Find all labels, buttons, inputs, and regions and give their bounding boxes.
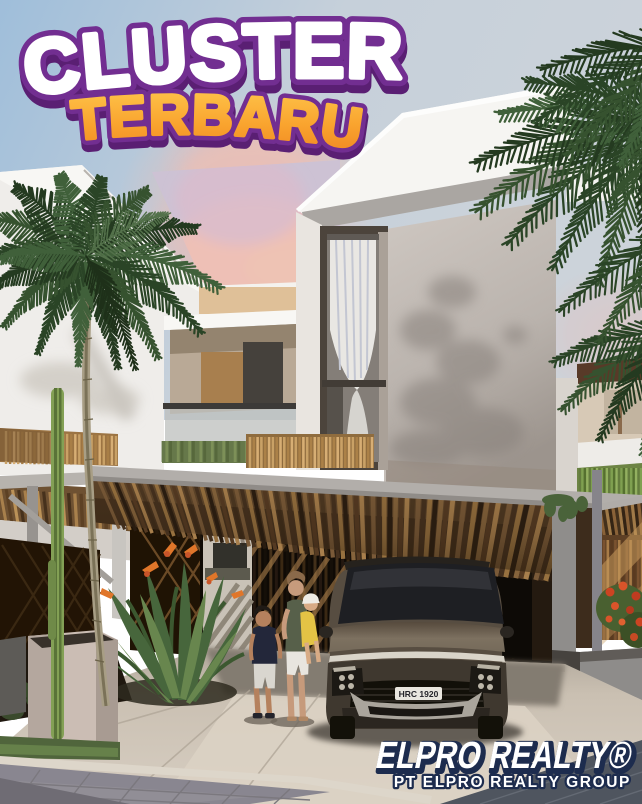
svg-text:ELPRO REALTY®: ELPRO REALTY® [372,734,636,777]
svg-text:PT ELPRO REALTY GROUP: PT ELPRO REALTY GROUP [394,774,631,791]
svg-text:HRC 1920: HRC 1920 [399,689,439,699]
